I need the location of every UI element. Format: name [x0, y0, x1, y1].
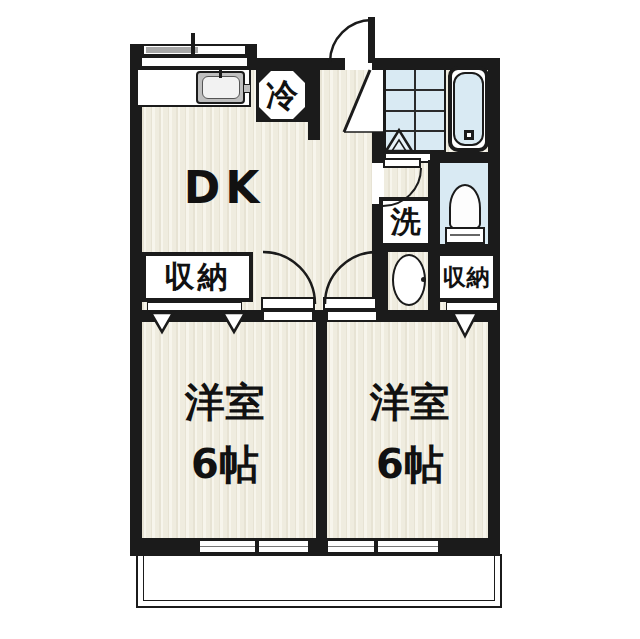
washing-machine-label: 洗 [391, 207, 421, 237]
kitchen-counter-back [140, 56, 249, 68]
entry-door-opening [345, 58, 373, 70]
refrigerator-space: 冷 [256, 68, 308, 122]
toilet-tank [445, 227, 485, 244]
bedroom2-size: 6帖 [330, 444, 490, 484]
bedroom1-label: 洋室 6帖 [145, 382, 305, 484]
bedroom1-door-leaf [261, 297, 315, 310]
closet-right-track [446, 302, 498, 311]
window-bedroom1 [200, 541, 308, 552]
washbasin-faucet-dot [421, 277, 426, 282]
bedroom1-door-threshold [264, 312, 312, 320]
entry-door-arc [330, 20, 372, 62]
window-bedroom2 [328, 541, 438, 552]
closet-right-label: 収納 [443, 266, 491, 289]
dk-label: DK [178, 166, 270, 210]
bedroom2-door-leaf [323, 297, 377, 310]
closet-right: 収納 [436, 252, 497, 302]
bedroom1-name: 洋室 [145, 382, 305, 422]
bedroom2-door-threshold [328, 312, 376, 320]
closet-left: 収納 [142, 252, 253, 302]
closet-left-label: 収納 [165, 262, 231, 292]
wall-left [130, 58, 142, 556]
balcony-inner-line [143, 554, 495, 601]
bedroom1-size: 6帖 [145, 444, 305, 484]
bedroom2-name: 洋室 [330, 382, 490, 422]
washroom-door-leaf [383, 158, 421, 168]
wall-bedroom-divider [316, 310, 327, 538]
wall-dk-hall-stub [308, 70, 320, 140]
washing-machine-space: 洗 [379, 197, 432, 247]
bathroom-washing-area [384, 68, 446, 152]
refrigerator-label: 冷 [266, 79, 298, 111]
floor-plan: 冷 洗 収納 収納 DK 洋室 6帖 洋室 [0, 0, 640, 639]
wall-middle [130, 310, 500, 322]
toilet-bowl [449, 184, 481, 230]
kitchen-faucet-icon [219, 69, 222, 78]
closet-left-track [147, 302, 242, 311]
kitchen-sink-basin [202, 76, 240, 99]
entry-door-leaf [368, 17, 375, 63]
kitchen-sink-side-tab [243, 84, 251, 93]
bedroom2-label: 洋室 6帖 [330, 382, 490, 484]
kitchen-window-shade [146, 47, 198, 53]
toilet-tank-line [450, 234, 480, 236]
bathtub-drain [464, 130, 474, 140]
